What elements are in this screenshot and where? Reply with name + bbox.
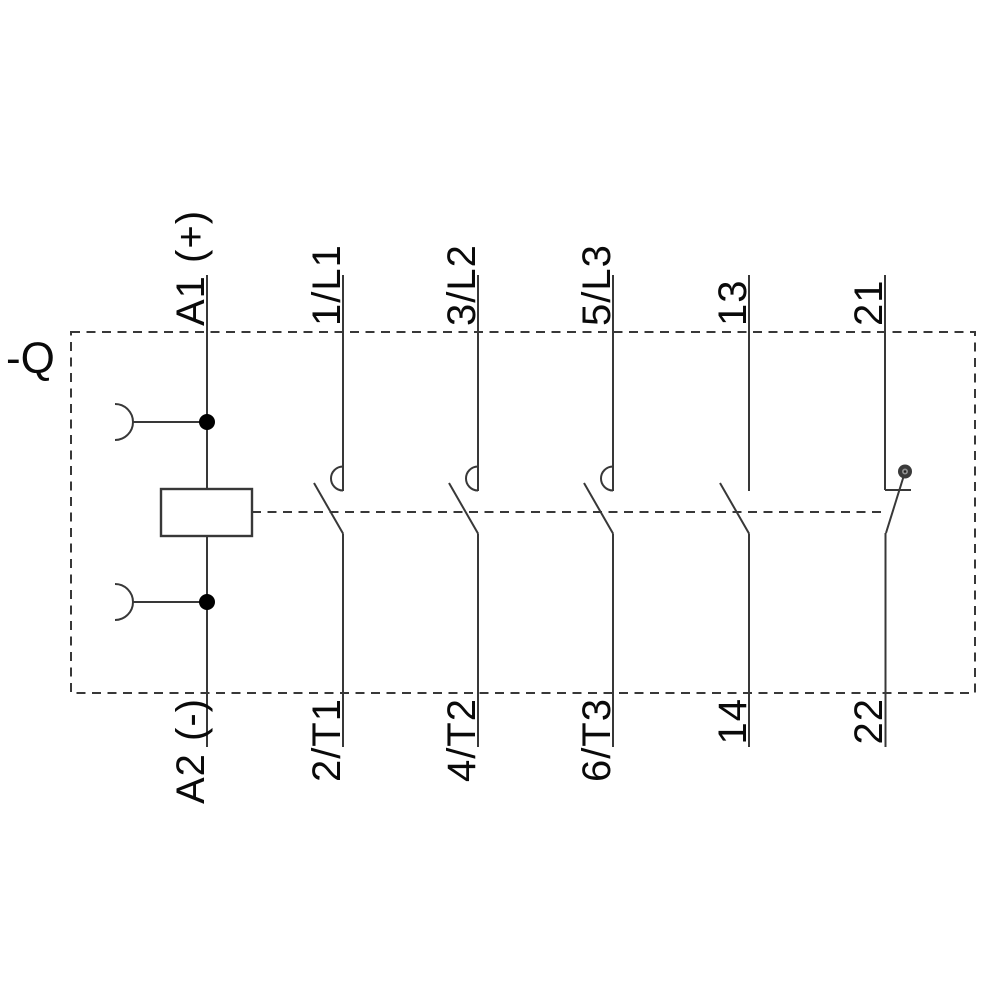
terminal-label-a1: A1 (+) bbox=[169, 210, 213, 326]
terminal-label-4t2: 4/T2 bbox=[440, 698, 484, 782]
terminal-label-5l3: 5/L3 bbox=[575, 244, 619, 326]
terminal-label-14: 14 bbox=[711, 698, 755, 745]
terminal-label-21: 21 bbox=[847, 280, 891, 327]
contactor-schematic: -Q bbox=[0, 0, 1000, 1000]
contact-blade bbox=[720, 483, 749, 534]
terminal-label-6t3: 6/T3 bbox=[575, 698, 619, 782]
terminal-label-1l1: 1/L1 bbox=[305, 244, 349, 326]
main-contact-hook-icon bbox=[466, 467, 478, 491]
main-contact-hook-icon bbox=[601, 467, 613, 491]
terminal-clamp-icon-top bbox=[115, 404, 133, 440]
terminal-label-13: 13 bbox=[711, 280, 755, 327]
junction-dot-bottom bbox=[199, 594, 215, 610]
pivot-marker-center bbox=[904, 470, 907, 473]
coil-branch bbox=[115, 275, 252, 747]
aux-nc-contact bbox=[885, 275, 912, 747]
terminal-label-22: 22 bbox=[847, 698, 891, 745]
coil-symbol bbox=[161, 489, 252, 536]
contact-blade bbox=[886, 472, 905, 533]
junction-dot-top bbox=[199, 414, 215, 430]
terminal-label-3l2: 3/L2 bbox=[440, 244, 484, 326]
terminal-clamp-icon-bottom bbox=[115, 584, 133, 620]
terminal-label-2t1: 2/T1 bbox=[305, 698, 349, 782]
terminal-label-a2: A2 (-) bbox=[169, 698, 213, 804]
main-contact-hook-icon bbox=[331, 467, 343, 491]
device-tag-label: -Q bbox=[6, 334, 55, 383]
